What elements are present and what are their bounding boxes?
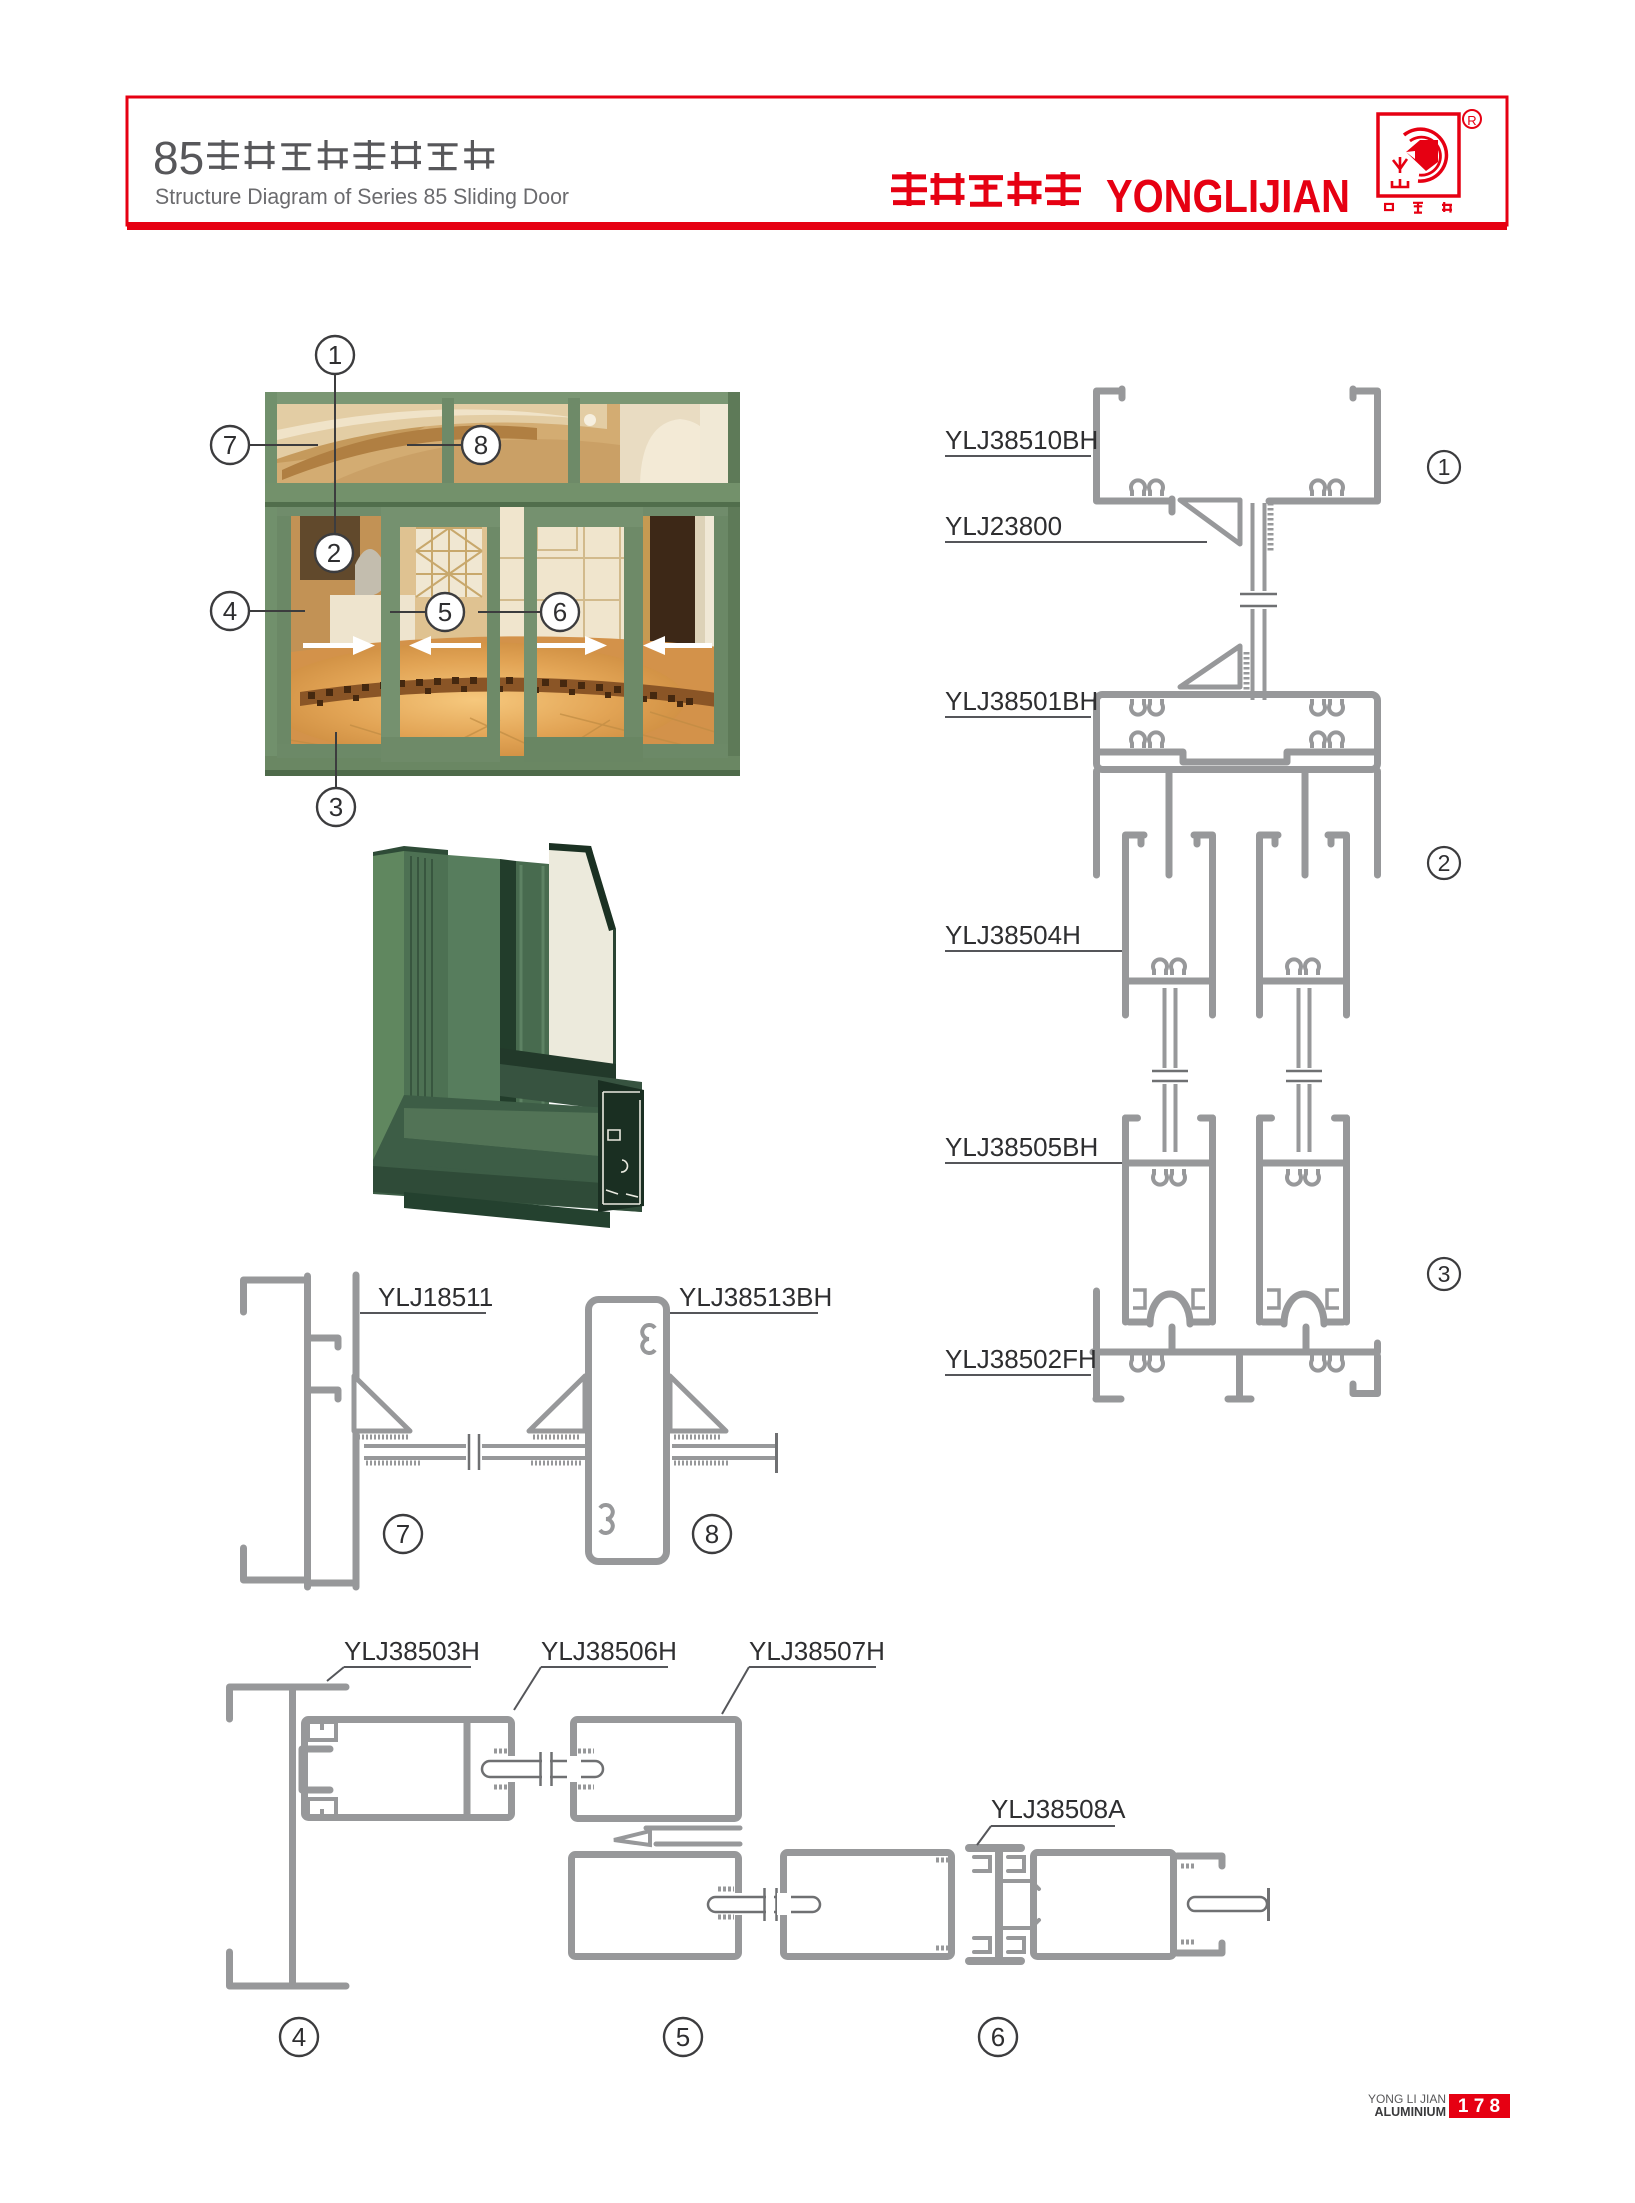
- svg-text:YONG LI JIAN: YONG LI JIAN: [1368, 2092, 1446, 2106]
- svg-text:1: 1: [1438, 454, 1451, 480]
- svg-text:Structure Diagram of Series 85: Structure Diagram of Series 85 Sliding D…: [155, 184, 569, 209]
- svg-text:R: R: [1467, 113, 1476, 128]
- svg-text:2: 2: [1438, 850, 1451, 876]
- svg-text:6: 6: [991, 2022, 1005, 2052]
- svg-text:7: 7: [223, 430, 237, 460]
- svg-text:7: 7: [396, 1519, 410, 1549]
- svg-text:YLJ38506H: YLJ38506H: [541, 1636, 677, 1666]
- svg-text:5: 5: [438, 597, 452, 627]
- svg-text:3: 3: [1438, 1261, 1451, 1287]
- svg-text:8: 8: [474, 430, 488, 460]
- svg-text:YLJ38507H: YLJ38507H: [749, 1636, 885, 1666]
- svg-text:YLJ38513BH: YLJ38513BH: [679, 1282, 832, 1312]
- svg-text:YLJ38501BH: YLJ38501BH: [945, 686, 1098, 716]
- svg-text:YLJ38504H: YLJ38504H: [945, 920, 1081, 950]
- svg-text:2: 2: [327, 538, 341, 568]
- svg-text:YLJ23800: YLJ23800: [945, 511, 1062, 541]
- svg-text:4: 4: [292, 2022, 306, 2052]
- svg-text:3: 3: [329, 792, 343, 822]
- svg-text:YLJ38503H: YLJ38503H: [344, 1636, 480, 1666]
- svg-text:4: 4: [223, 596, 237, 626]
- svg-text:6: 6: [553, 597, 567, 627]
- svg-text:YLJ38508A: YLJ38508A: [991, 1794, 1126, 1824]
- svg-text:5: 5: [676, 2022, 690, 2052]
- svg-text:8: 8: [705, 1519, 719, 1549]
- svg-text:YLJ38505BH: YLJ38505BH: [945, 1132, 1098, 1162]
- svg-text:YLJ38510BH: YLJ38510BH: [945, 425, 1098, 455]
- svg-text:YLJ38502FH: YLJ38502FH: [945, 1344, 1097, 1374]
- svg-text:ALUMINIUM: ALUMINIUM: [1374, 2105, 1446, 2119]
- svg-text:YONGLIJIAN: YONGLIJIAN: [1106, 170, 1350, 222]
- svg-text:1: 1: [328, 340, 342, 370]
- svg-text:YLJ18511: YLJ18511: [378, 1282, 493, 1312]
- svg-text:85: 85: [153, 132, 204, 184]
- svg-text:1 7 8: 1 7 8: [1458, 2096, 1500, 2117]
